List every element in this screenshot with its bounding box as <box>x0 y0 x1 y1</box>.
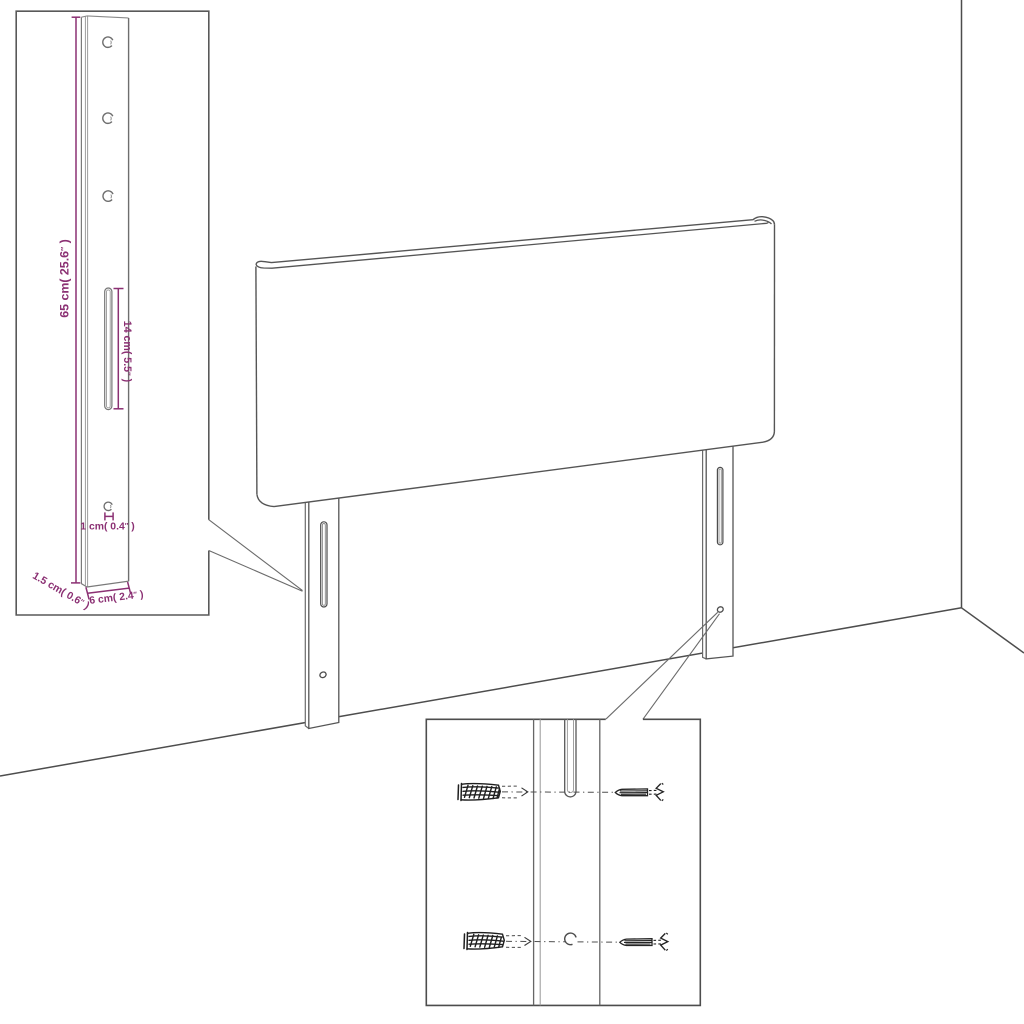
svg-text:65 cm( 25.6″ ): 65 cm( 25.6″ ) <box>57 239 71 318</box>
